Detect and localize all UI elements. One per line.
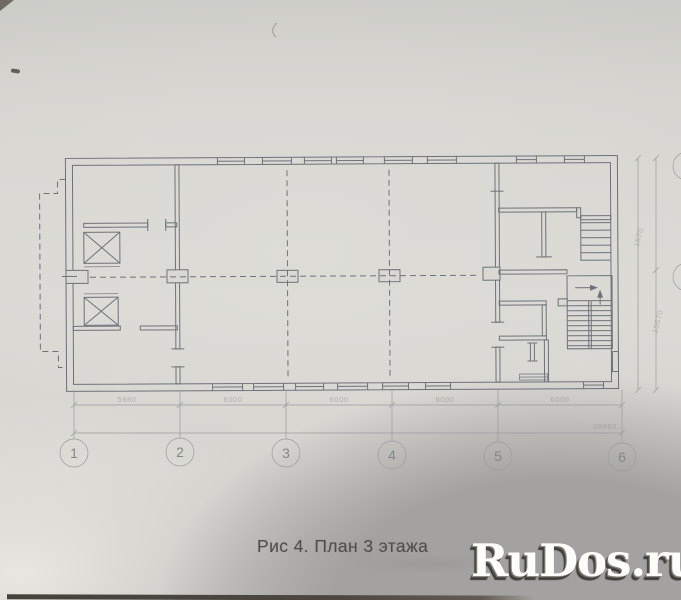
dim-side-upper: 1570	[632, 227, 646, 248]
grid-bubble-1: 1	[60, 439, 88, 467]
grid-bubble-4: 4	[378, 441, 406, 469]
floor-plan-drawing: 5980 6000 6000 6000 6000 29980 1570 1557…	[0, 0, 681, 600]
grid-bubble-2: 2	[166, 438, 194, 466]
side-dimension-lines: 1570 15570	[632, 155, 665, 393]
svg-text:2: 2	[176, 444, 184, 460]
svg-text:5: 5	[494, 448, 502, 464]
dim-bay-2-3: 6000	[223, 395, 242, 404]
figure-caption: Рис 4. План 3 этажа	[257, 536, 428, 557]
rudos-watermark: RuDos.ru	[471, 538, 681, 583]
svg-text:4: 4	[388, 447, 396, 463]
photo-of-floor-plan: 5980 6000 6000 6000 6000 29980 1570 1557…	[0, 0, 681, 600]
staircase	[558, 216, 613, 349]
dim-bay-3-4: 6000	[329, 395, 348, 404]
radiator-symbol	[527, 343, 537, 361]
plan-linework	[39, 156, 618, 392]
row-bubbles-clipped	[673, 152, 681, 291]
stray-arc-mark	[273, 23, 277, 37]
shaft-boxes	[84, 232, 120, 325]
grid-bubble-5: 5	[484, 442, 512, 470]
dim-side-lower: 15570	[650, 309, 665, 334]
dim-bay-5-6: 6000	[550, 395, 569, 404]
upper-stair-treads	[581, 216, 611, 261]
svg-text:3: 3	[282, 445, 290, 461]
bay-dimension-labels: 5980 6000 6000 6000 6000 29980	[117, 395, 616, 431]
dashed-exterior-outline	[39, 179, 66, 367]
photo-bottom-edge	[7, 594, 534, 600]
interior-walls	[61, 163, 618, 385]
grid-bubble-3: 3	[272, 439, 300, 467]
dim-bay-4-5: 6000	[435, 395, 454, 404]
svg-text:6: 6	[618, 449, 626, 465]
grid-bubble-6: 6	[608, 443, 636, 471]
grid-and-dimensions: 5980 6000 6000 6000 6000 29980 1570 1557…	[60, 152, 681, 471]
dim-total: 29980	[593, 422, 617, 431]
svg-text:1: 1	[70, 445, 78, 461]
dim-bay-1-2: 5980	[117, 395, 136, 404]
